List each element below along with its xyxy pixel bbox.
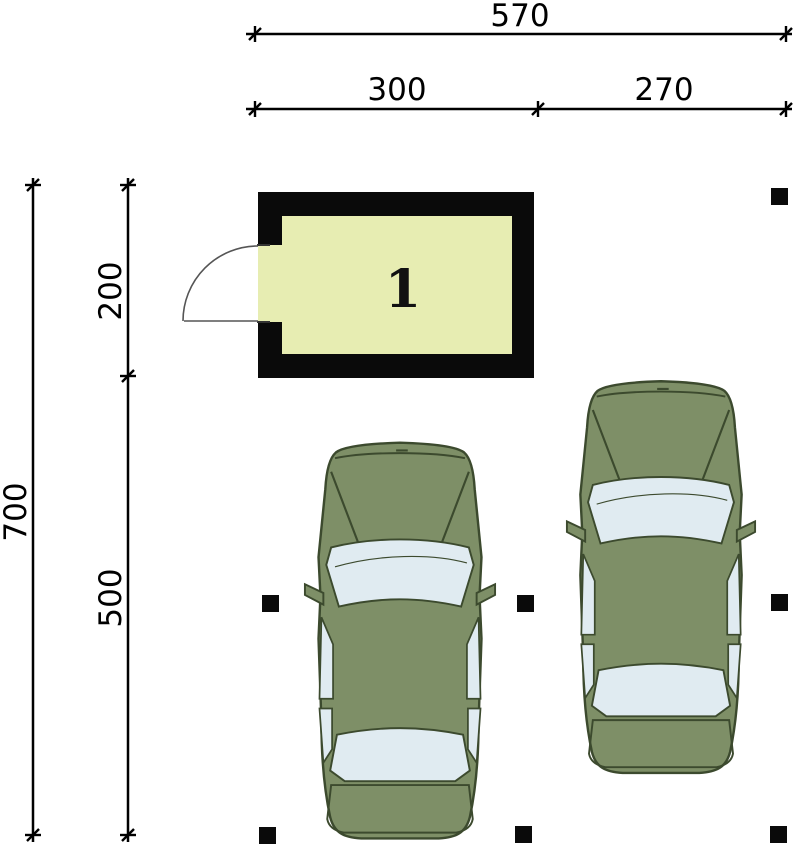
dim-label-top-left-segment: 300: [352, 73, 442, 107]
dim-label-left-lower-segment: 500: [94, 553, 128, 643]
dim-label-top-total: 570: [475, 0, 565, 33]
support-post-bottom-right: [770, 826, 787, 843]
door-swing-arc: [183, 246, 258, 321]
support-post-mid-left: [262, 595, 279, 612]
dim-label-top-right-segment: 270: [619, 73, 709, 107]
support-post-top-right: [771, 188, 788, 205]
support-post-mid-right: [771, 594, 788, 611]
tick-h: [249, 26, 792, 117]
room-number: 1: [363, 259, 443, 319]
dim-label-left-total: 700: [0, 467, 33, 557]
floor-plan-canvas: 1: [0, 0, 800, 853]
car-2-top-view: [565, 369, 757, 789]
support-post-bottom-center: [515, 826, 532, 843]
car-1-top-view: [303, 431, 497, 853]
door-opening: [258, 245, 283, 322]
support-post-mid-center: [517, 595, 534, 612]
dim-label-left-upper-segment: 200: [94, 246, 128, 336]
support-post-bottom-left: [259, 827, 276, 844]
